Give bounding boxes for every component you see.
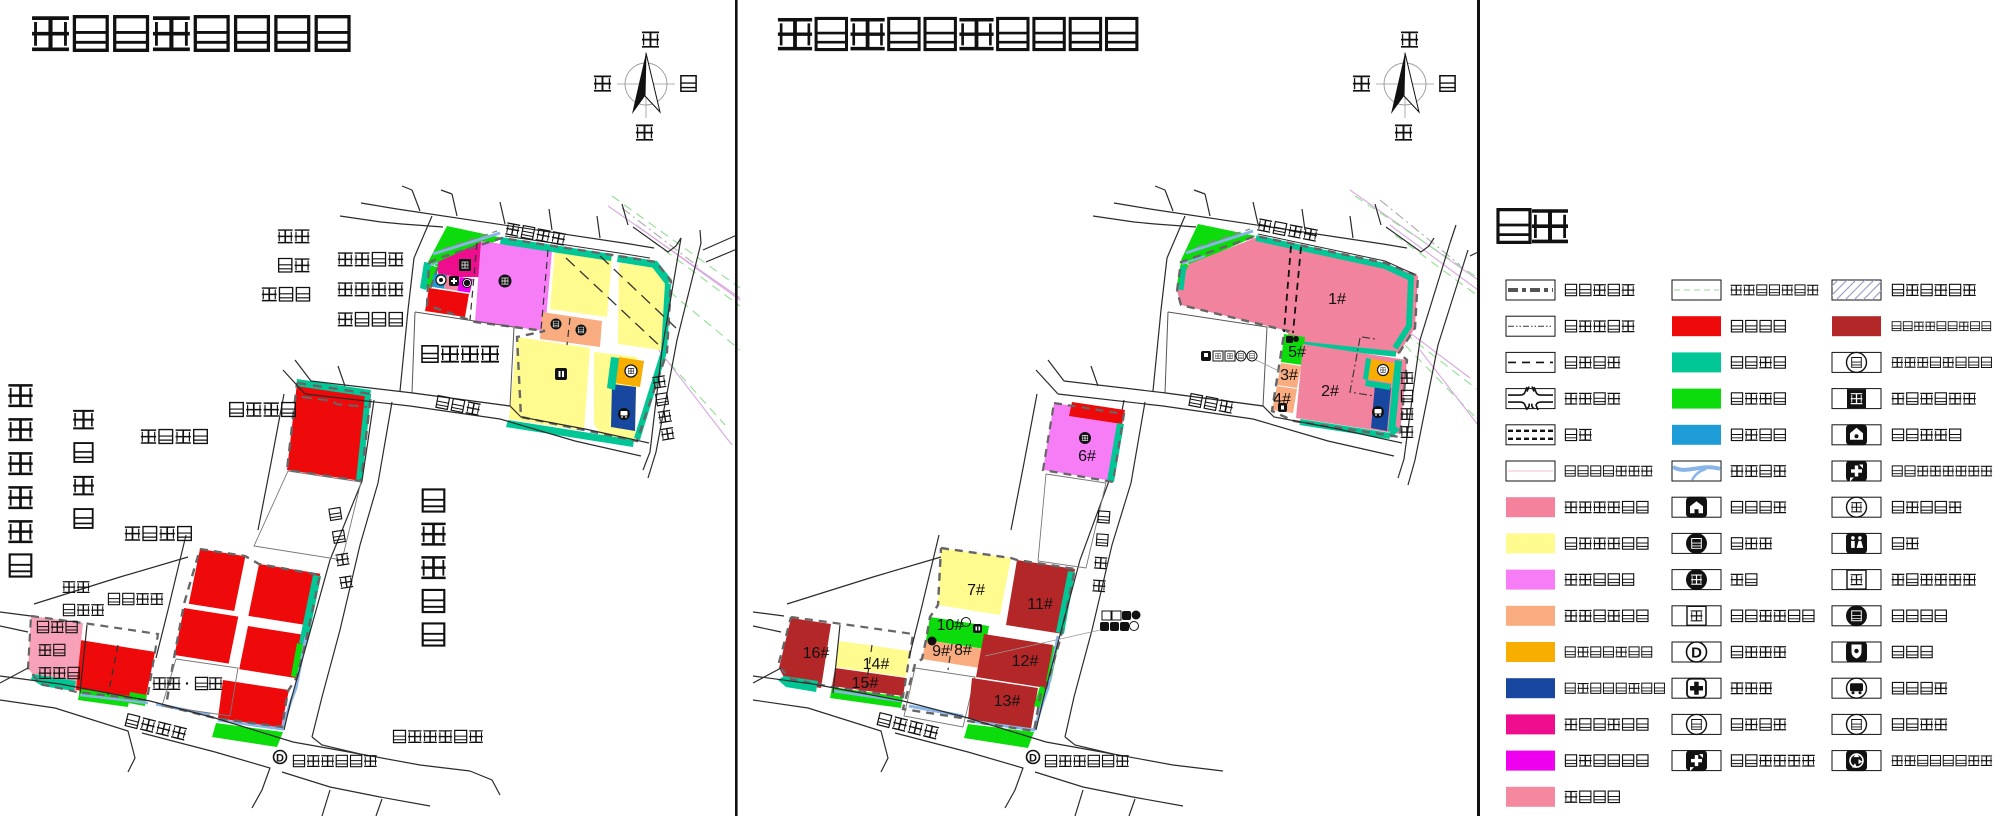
svg-text:2#: 2#: [1321, 383, 1339, 400]
svg-text:5#: 5#: [1288, 344, 1306, 361]
svg-text:D: D: [1691, 645, 1702, 662]
svg-text:7#: 7#: [967, 582, 985, 599]
svg-text:D: D: [1029, 753, 1037, 765]
svg-text:14#: 14#: [863, 656, 890, 673]
svg-text:D: D: [276, 753, 284, 765]
svg-text:1#: 1#: [1328, 291, 1346, 308]
svg-text:12#: 12#: [1012, 653, 1039, 670]
svg-text:11#: 11#: [1027, 596, 1053, 613]
svg-text:10#: 10#: [937, 617, 964, 634]
svg-text:13#: 13#: [994, 693, 1021, 710]
svg-text:6#: 6#: [1078, 448, 1096, 465]
svg-text:9#: 9#: [932, 643, 950, 660]
svg-text:8#: 8#: [954, 642, 972, 659]
svg-text:15#: 15#: [852, 675, 879, 692]
svg-text:3#: 3#: [1280, 367, 1298, 384]
svg-text:16#: 16#: [803, 645, 830, 662]
